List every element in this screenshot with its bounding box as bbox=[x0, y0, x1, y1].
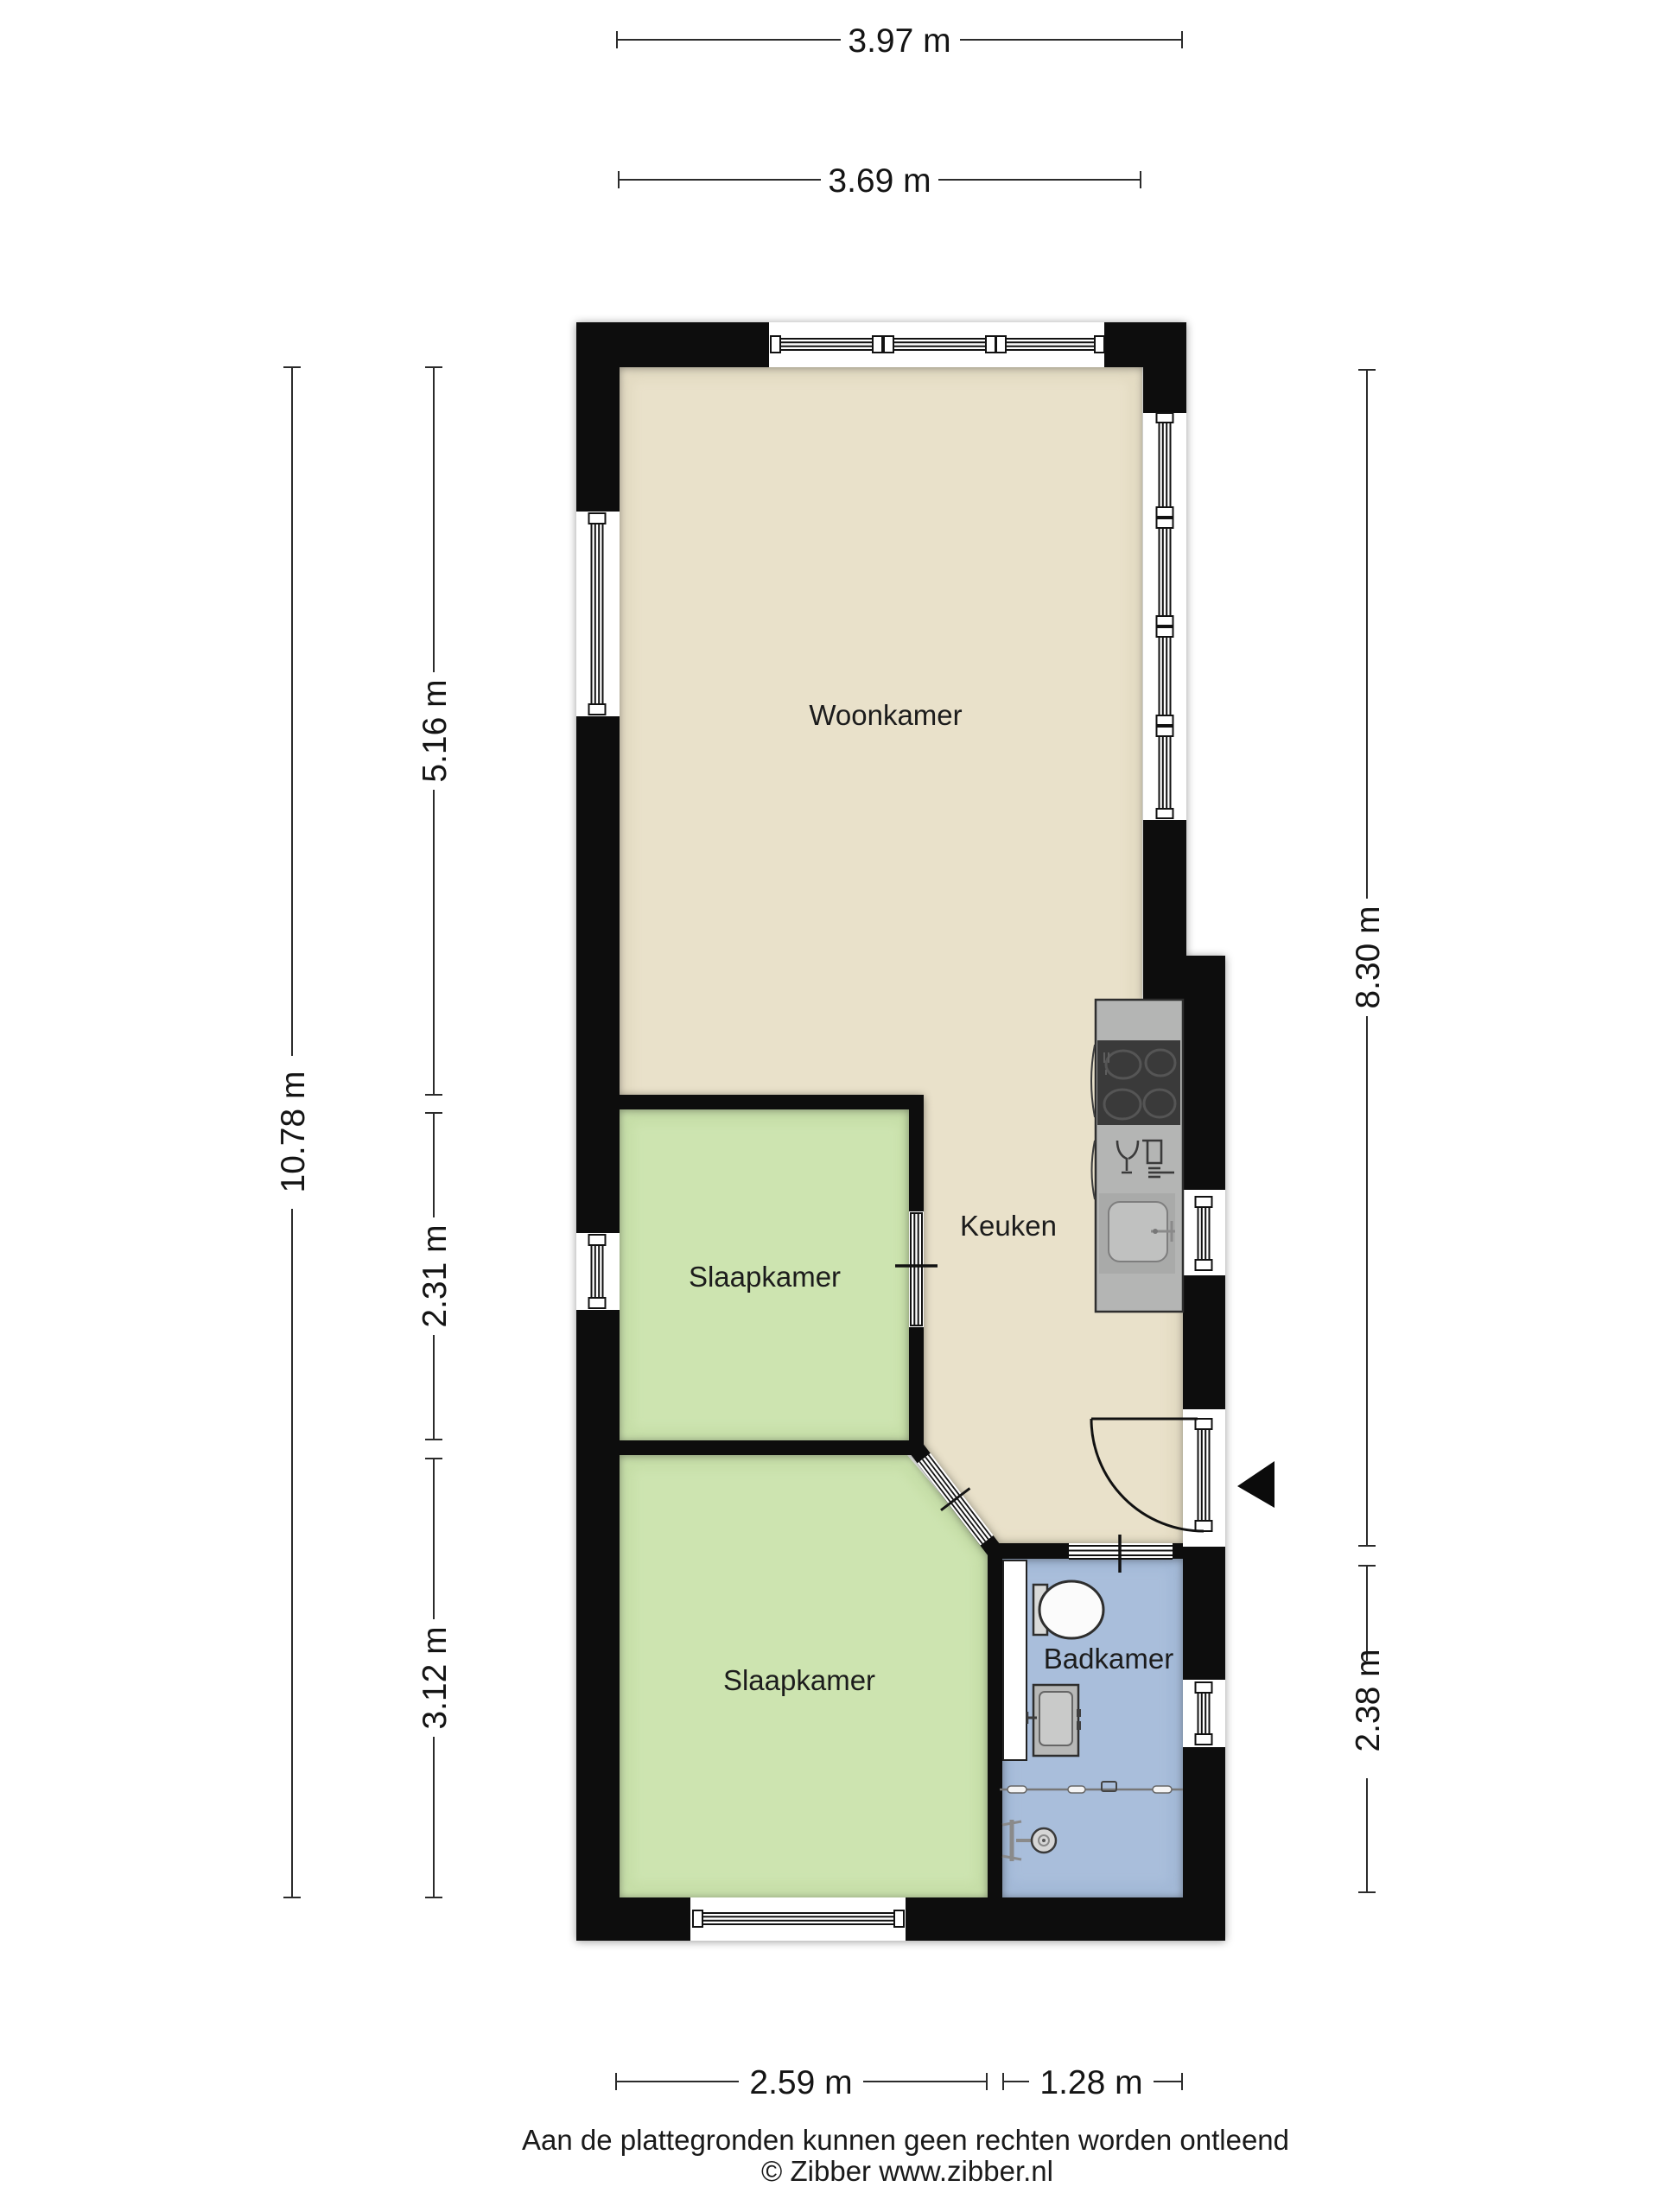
svg-text:2.38 m: 2.38 m bbox=[1350, 1649, 1387, 1751]
svg-text:1.28 m: 1.28 m bbox=[1039, 2064, 1142, 2101]
svg-text:© Zibber www.zibber.nl: © Zibber www.zibber.nl bbox=[761, 2155, 1053, 2187]
svg-text:3.12 m: 3.12 m bbox=[416, 1626, 454, 1729]
svg-text:Keuken: Keuken bbox=[960, 1210, 1057, 1242]
svg-text:2.31 m: 2.31 m bbox=[416, 1224, 454, 1327]
svg-text:5.16 m: 5.16 m bbox=[416, 679, 454, 782]
svg-text:Slaapkamer: Slaapkamer bbox=[689, 1261, 841, 1293]
svg-text:3.97 m: 3.97 m bbox=[848, 22, 950, 60]
svg-text:Badkamer: Badkamer bbox=[1044, 1643, 1173, 1675]
svg-text:Slaapkamer: Slaapkamer bbox=[723, 1664, 875, 1696]
svg-text:10.78 m: 10.78 m bbox=[275, 1071, 312, 1193]
svg-text:3.69 m: 3.69 m bbox=[828, 162, 931, 200]
svg-text:2.59 m: 2.59 m bbox=[749, 2064, 852, 2101]
svg-text:Woonkamer: Woonkamer bbox=[809, 699, 962, 731]
svg-text:8.30 m: 8.30 m bbox=[1350, 906, 1387, 1008]
svg-text:Aan de plattegronden kunnen ge: Aan de plattegronden kunnen geen rechten… bbox=[522, 2124, 1289, 2156]
